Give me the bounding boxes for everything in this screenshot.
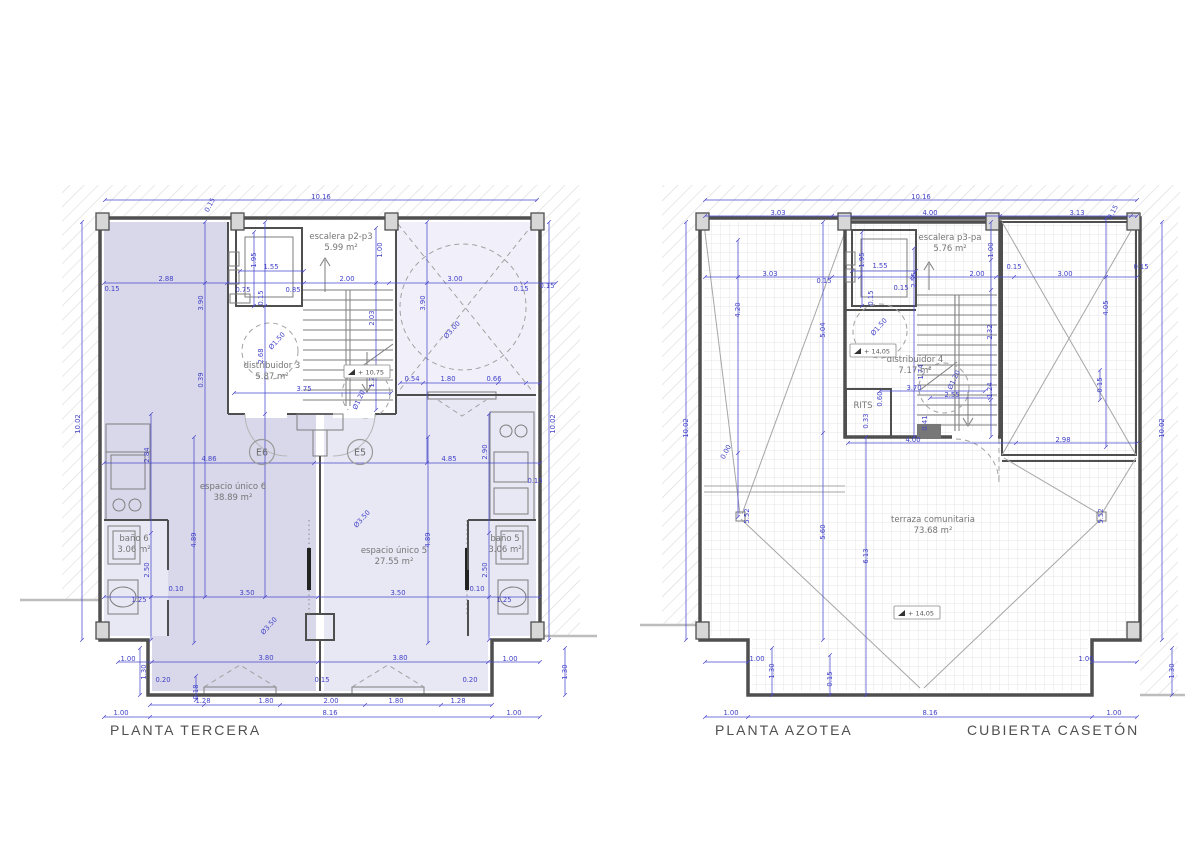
dimension-label: 1.00	[749, 655, 764, 663]
dimension-label: 1.80	[440, 375, 455, 383]
pillar	[531, 622, 544, 639]
dimension-label: 0.15	[816, 277, 831, 285]
plan-title-caseton: CUBIERTA CASETÓN	[967, 722, 1139, 738]
pillar	[1127, 213, 1140, 230]
dimension-label: 0.20	[155, 676, 170, 684]
dimension-label: 1.00	[506, 709, 521, 717]
dimension-label: 2.50	[481, 562, 489, 577]
dimension-label: 1.24	[986, 382, 994, 397]
dimension-label: 1.00	[987, 242, 995, 257]
dimension-label: 1.28	[195, 697, 210, 705]
planta-azotea-plan: 10.163.034.003.130.153.030.151.951.550.1…	[640, 185, 1185, 717]
pillar	[838, 213, 851, 230]
pillar	[1127, 622, 1140, 639]
dimension-label: 0.15	[1096, 377, 1104, 392]
dimension-label: 1.00	[502, 655, 517, 663]
dimension-label: 1.25	[131, 596, 146, 604]
dimension-label: 3.90	[197, 295, 205, 310]
room-label: baño 53.06 m²	[488, 534, 521, 555]
hatch-band	[662, 185, 1180, 218]
room-label: baño 63.06 m²	[117, 534, 150, 555]
dimension-label: 1.00	[723, 709, 738, 717]
dimension-label: 6.13	[862, 548, 870, 563]
dimension-label: 5.04	[819, 322, 827, 337]
hatch-band	[1140, 218, 1178, 695]
dimension-label: 2.55	[910, 272, 918, 287]
dimension-label: 0.15	[314, 676, 329, 684]
dimension-label: 0.39	[197, 372, 205, 387]
dimension-label: 1.95	[858, 252, 866, 267]
dimension-label: 5.60	[819, 524, 827, 539]
dimension-label: 3.80	[392, 654, 407, 662]
dimension-label: 3.50	[390, 589, 405, 597]
dimension-label: 10.02	[682, 418, 690, 437]
dimension-label: 4.85	[441, 455, 456, 463]
dimension-label: 1.00	[120, 655, 135, 663]
hatch-band	[62, 185, 580, 218]
dimension-label: 1.55	[263, 263, 278, 271]
dimension-label: 2.32	[986, 324, 994, 339]
dimension-label: 0.41	[921, 415, 929, 430]
dimension-label: 3.13	[1069, 209, 1084, 217]
dimension-label: 8.16	[322, 709, 337, 717]
dimension-label: 1.80	[388, 697, 403, 705]
dimension-label: 0.15	[513, 285, 528, 293]
dimension-label: 5.52	[743, 508, 751, 523]
dimension-label: 1.30	[561, 664, 569, 679]
dimension-label: 2.00	[323, 697, 338, 705]
dimension-label: 3.00	[447, 275, 462, 283]
dimension-label: 0.33	[862, 413, 870, 428]
dimension-label: 1.28	[450, 697, 465, 705]
dimension-label: 10.02	[549, 414, 557, 433]
floorplan-svg: 10.160.152.880.151.951.550.750.850.152.0…	[0, 0, 1200, 848]
dimension-label: 1.30	[140, 664, 148, 679]
plan-title-azotea: PLANTA AZOTEA	[715, 722, 853, 738]
dimension-label: 4.89	[190, 532, 198, 547]
dimension-label: 0.15	[1133, 263, 1148, 271]
level-label: + 14,05	[864, 348, 890, 356]
pillar	[696, 213, 709, 230]
dimension-label: 2.03	[368, 310, 376, 325]
terrace-tiles	[704, 222, 1136, 691]
dimension-label: 1.55	[872, 262, 887, 270]
dimension-label: 0.66	[486, 375, 501, 383]
dimension-label: 0.10	[168, 585, 183, 593]
dimension-label: 2.55	[944, 391, 959, 399]
dimension-label: 1.00	[1078, 655, 1093, 663]
hatch-band	[62, 218, 100, 600]
room-label: RITS	[853, 401, 872, 411]
dimension-label: 4.00	[922, 209, 937, 217]
dimension-label: 2.90	[481, 444, 489, 459]
dimension-label: 8.16	[922, 709, 937, 717]
dimension-label: 2.00	[969, 270, 984, 278]
dimension-label: 1.80	[258, 697, 273, 705]
hatch-band	[662, 218, 700, 625]
dimension-label: 2.00	[339, 275, 354, 283]
dimension-label: 3.80	[258, 654, 273, 662]
door-opening	[245, 410, 287, 418]
dimension-label: 0.15	[257, 290, 265, 305]
dimension-label: 0.15	[527, 477, 542, 485]
dimension-label: 1.30	[1168, 663, 1176, 678]
pillar	[531, 213, 544, 230]
dimension-label: 1.95	[250, 252, 258, 267]
dimension-label: 0.60	[876, 391, 884, 406]
dimension-label: 0.20	[462, 676, 477, 684]
dimension-label: 3.03	[762, 270, 777, 278]
dimension-label: 2.98	[1055, 436, 1070, 444]
level-label: + 10,75	[358, 369, 384, 377]
dimension-label: 0.75	[235, 286, 250, 294]
dimension-label: 3.50	[239, 589, 254, 597]
dimension-label: 4.20	[734, 302, 742, 317]
hatch-band	[540, 218, 580, 636]
drawing-sheet: 10.160.152.880.151.951.550.750.850.152.0…	[0, 0, 1200, 848]
dimension-label: 3.70	[906, 384, 921, 392]
dimension-label: 0.15	[826, 671, 834, 686]
dimension-label: 10.02	[1158, 418, 1166, 437]
dimension-label: 0.85	[285, 286, 300, 294]
dimension-label: 4.05	[1102, 300, 1110, 315]
dimension-label: 0.15	[867, 290, 875, 305]
level-label: + 14,05	[908, 610, 934, 618]
dimension-label: 3.75	[296, 385, 311, 393]
pillar	[385, 213, 398, 230]
pillar	[96, 622, 109, 639]
door-marker-label: E5	[354, 448, 366, 459]
planta-tercera-plan: 10.160.152.880.151.951.550.750.850.152.0…	[20, 185, 597, 717]
dimension-label: 0.15	[1006, 263, 1021, 271]
dimension-label: 3.03	[770, 209, 785, 217]
dimension-label: 10.02	[74, 414, 82, 433]
dimension-label: 4.86	[201, 455, 216, 463]
dimension-label: 3.00	[1057, 270, 1072, 278]
dimension-label: 1.00	[1106, 709, 1121, 717]
door-marker-label: E6	[256, 448, 268, 459]
dimension-label: 0.15	[104, 285, 119, 293]
pillar	[986, 213, 999, 230]
plan-title-tercera: PLANTA TERCERA	[110, 722, 261, 738]
dimension-label: 0.54	[404, 375, 419, 383]
dimension-label: 0.15	[893, 284, 908, 292]
dimension-label: 5.52	[1097, 508, 1105, 523]
pillar	[96, 213, 109, 230]
dimension-label: 3.90	[419, 295, 427, 310]
dimension-label: 0.10	[469, 585, 484, 593]
dimension-label: 2.84	[143, 447, 151, 462]
dimension-label: 10.16	[311, 193, 330, 201]
dimension-label: 2.50	[143, 562, 151, 577]
dimension-label: 1.00	[113, 709, 128, 717]
dimension-label: 2.88	[158, 275, 173, 283]
dimension-label: 1.25	[496, 596, 511, 604]
dimension-label: 10.16	[911, 193, 930, 201]
dimension-label: 1.00	[376, 242, 384, 257]
pillar	[231, 213, 244, 230]
dimension-label: 0.15	[539, 282, 554, 290]
dimension-label: 4.00	[905, 436, 920, 444]
pillar	[696, 622, 709, 639]
dimension-label: 1.30	[768, 663, 776, 678]
